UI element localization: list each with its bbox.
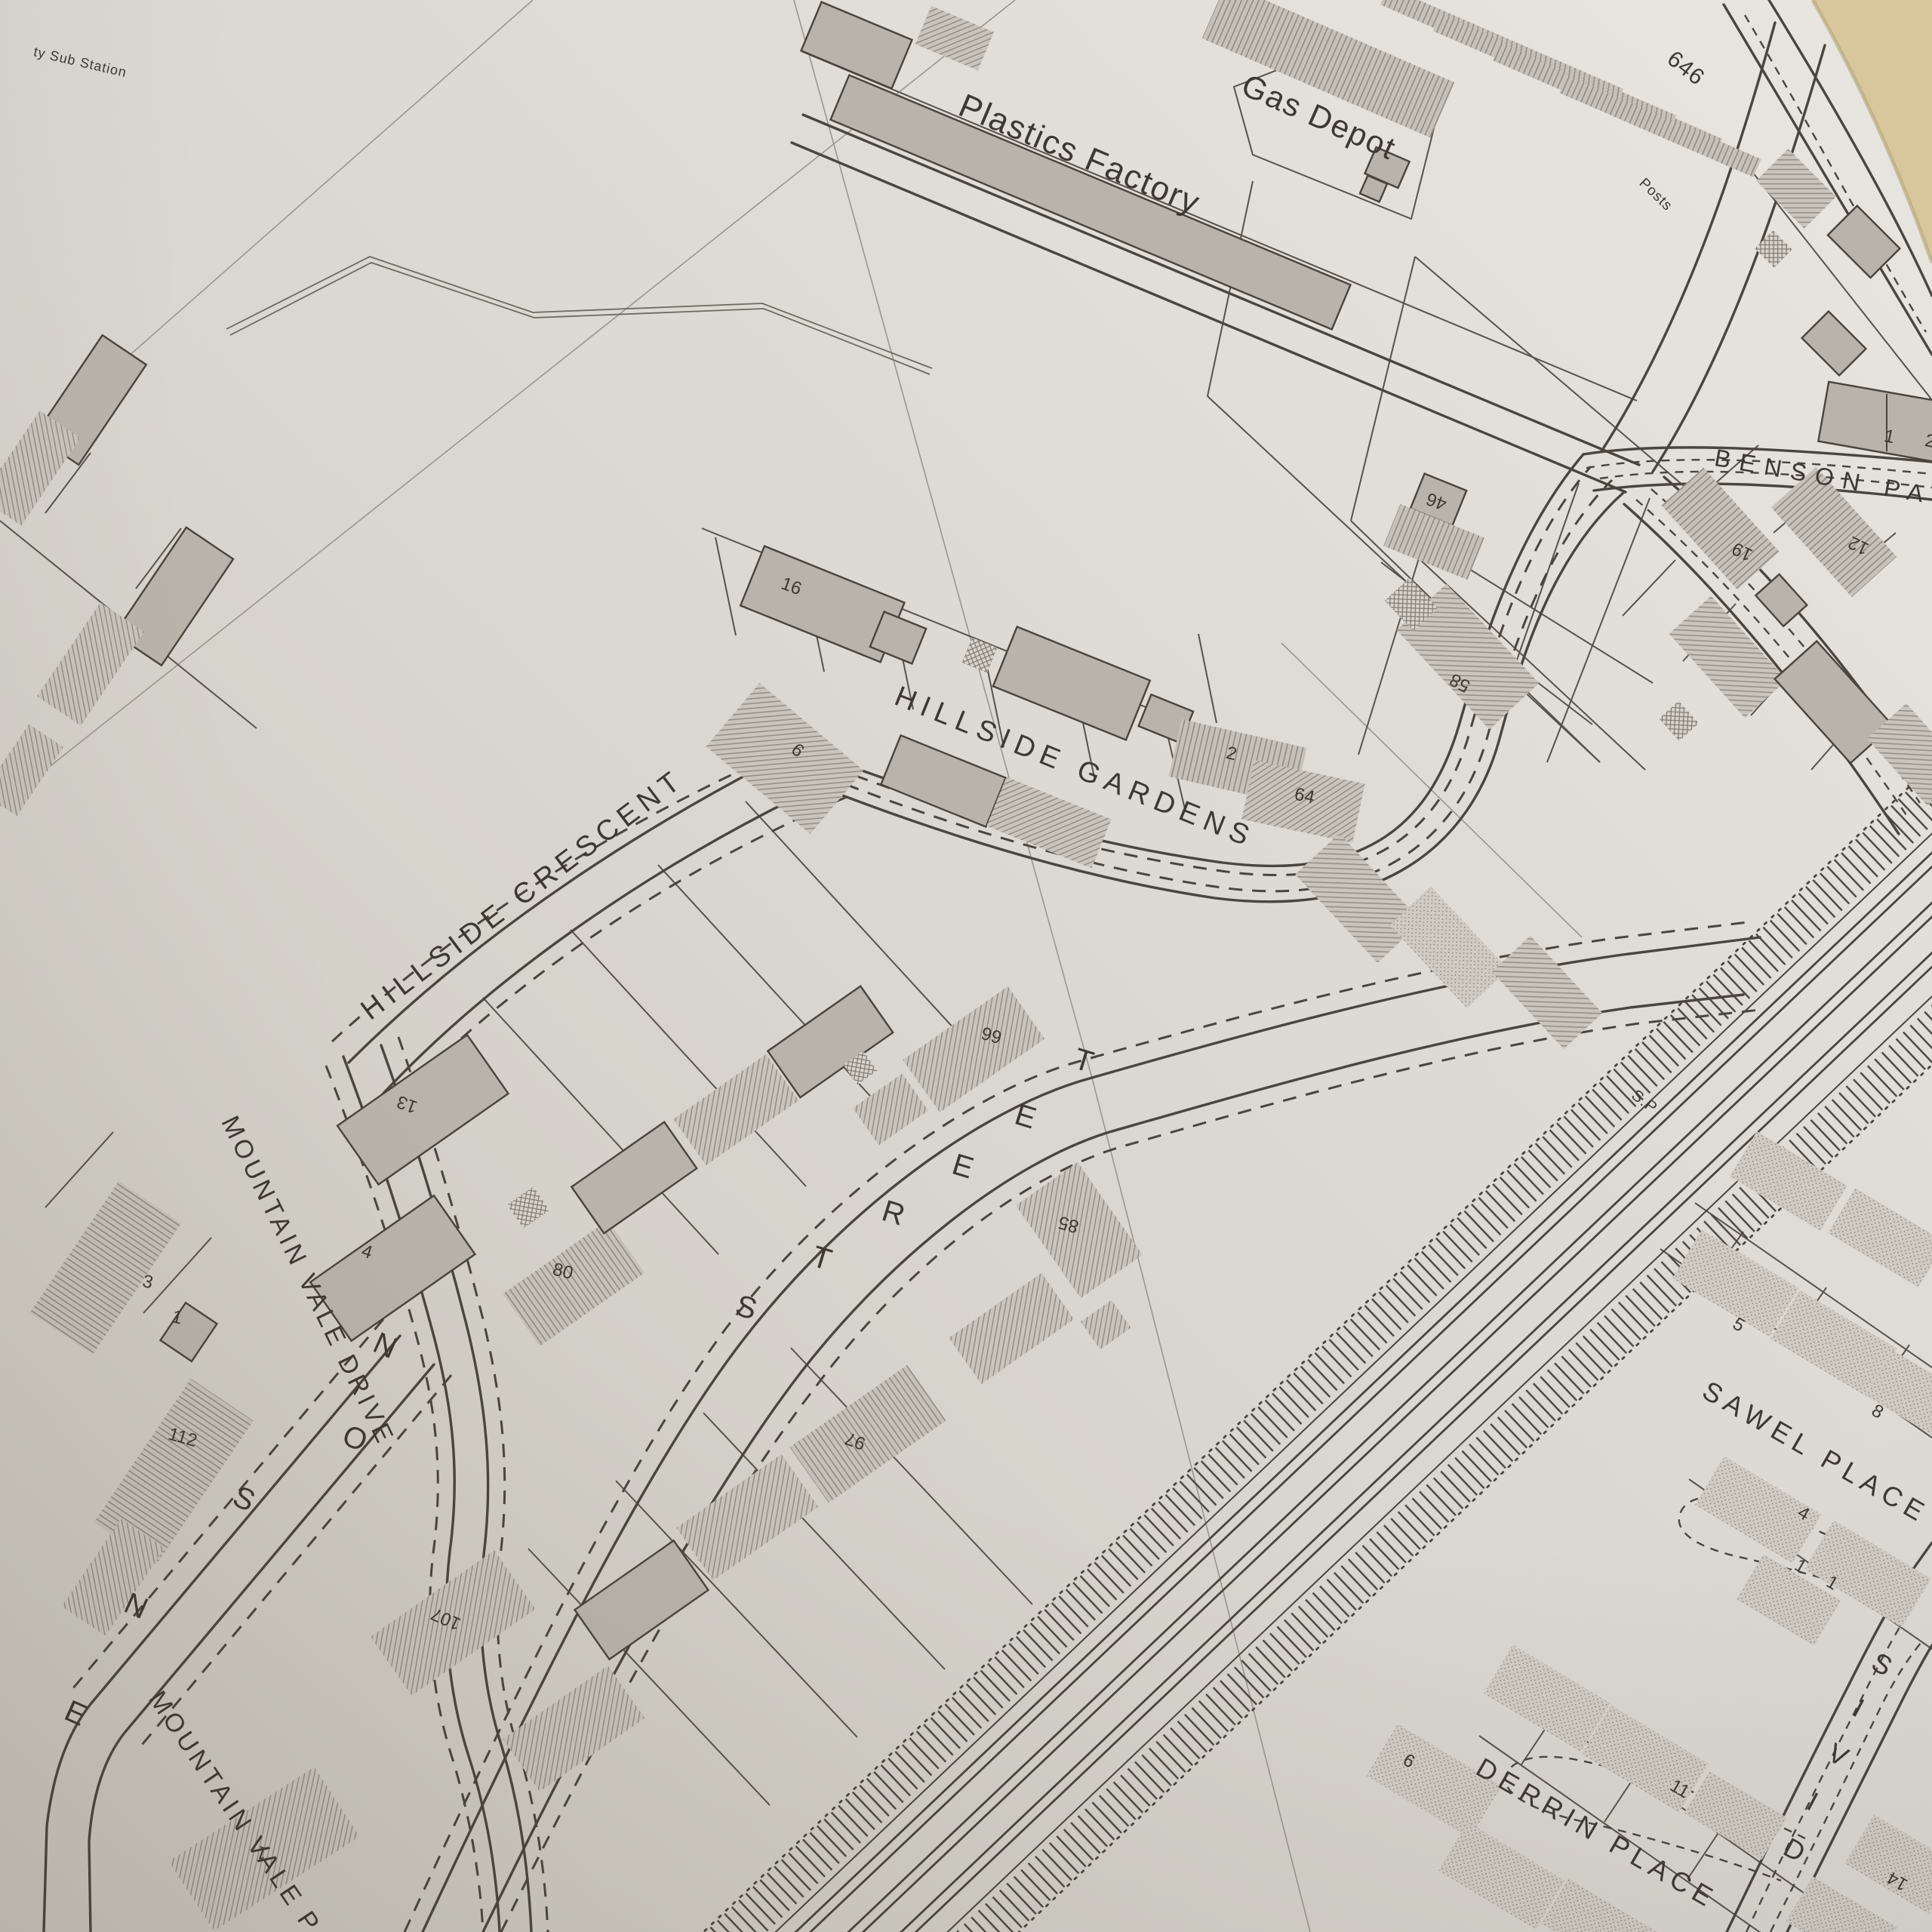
photographed-map: ty Sub StationPlastics FactoryGas Depot6… [0,0,1932,1932]
photo-vignette [0,0,1932,1932]
map-canvas: ty Sub StationPlastics FactoryGas Depot6… [0,0,1932,1932]
